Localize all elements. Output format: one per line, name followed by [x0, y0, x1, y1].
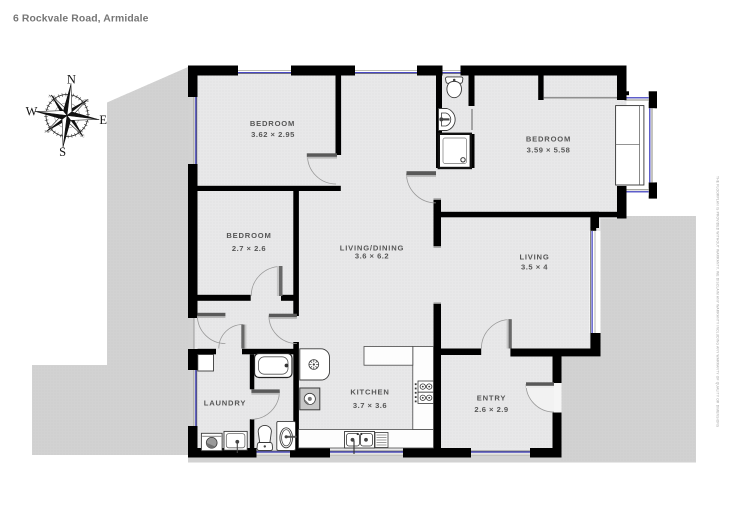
svg-text:3.7 × 3.6: 3.7 × 3.6: [353, 401, 387, 410]
svg-text:BEDROOM: BEDROOM: [250, 119, 295, 128]
svg-text:3.5 × 4: 3.5 × 4: [521, 262, 548, 271]
svg-text:N: N: [67, 73, 76, 87]
svg-text:W: W: [26, 104, 38, 118]
svg-text:BEDROOM: BEDROOM: [526, 135, 571, 144]
svg-text:E: E: [99, 113, 107, 127]
svg-text:3.6 × 6.2: 3.6 × 6.2: [355, 252, 389, 261]
svg-text:THE FLOORPLAN IS PROVIDED WITH: THE FLOORPLAN IS PROVIDED WITHOUT WARRAN…: [716, 176, 720, 427]
svg-text:LAUNDRY: LAUNDRY: [204, 399, 246, 408]
svg-text:3.62 × 2.95: 3.62 × 2.95: [251, 130, 295, 139]
svg-text:KITCHEN: KITCHEN: [350, 388, 389, 397]
svg-text:3.59 × 5.58: 3.59 × 5.58: [527, 145, 571, 154]
svg-text:S: S: [59, 145, 66, 159]
svg-text:6 Rockvale Road, Armidale: 6 Rockvale Road, Armidale: [13, 14, 149, 25]
svg-text:2.7 × 2.6: 2.7 × 2.6: [232, 244, 266, 253]
svg-text:2.6 × 2.9: 2.6 × 2.9: [474, 405, 508, 414]
svg-text:NW: NW: [48, 94, 55, 99]
svg-text:LIVING: LIVING: [519, 253, 549, 262]
svg-text:BEDROOM: BEDROOM: [226, 231, 271, 240]
svg-text:ENTRY: ENTRY: [477, 394, 506, 403]
